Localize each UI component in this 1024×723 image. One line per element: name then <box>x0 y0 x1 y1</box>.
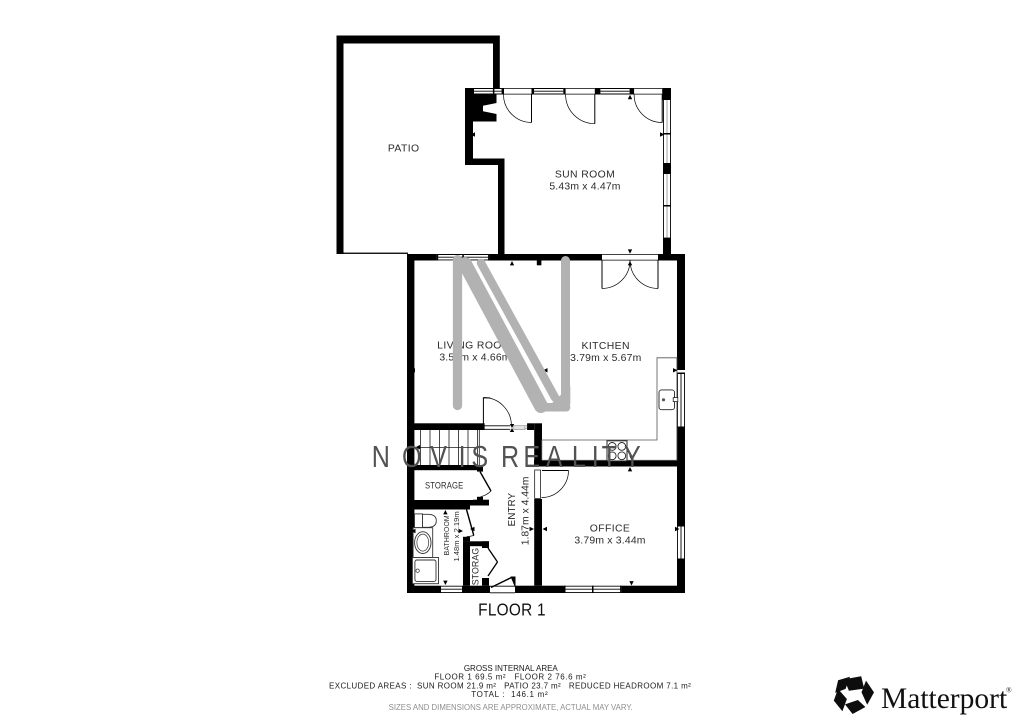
svg-text:FLOOR 1: FLOOR 1 <box>478 601 546 620</box>
svg-text:SUN ROOM: SUN ROOM <box>555 169 615 180</box>
svg-text:Matterport: Matterport <box>881 683 1008 715</box>
svg-text:TOTAL : 146.1 m²: TOTAL : 146.1 m² <box>471 690 548 699</box>
svg-text:3.55m x 4.66m: 3.55m x 4.66m <box>439 353 510 364</box>
svg-text:5.43m x 4.47m: 5.43m x 4.47m <box>549 181 620 192</box>
svg-text:FLOOR 1 69.5 m² FLOOR 2 76.6: FLOOR 1 69.5 m² FLOOR 2 76.6 m² <box>434 673 586 682</box>
svg-text:SIZES AND DIMENSIONS ARE APPRO: SIZES AND DIMENSIONS ARE APPROXIMATE, AC… <box>389 703 633 712</box>
svg-text:®: ® <box>1006 686 1012 695</box>
svg-text:1.87m x 4.44m: 1.87m x 4.44m <box>520 477 531 546</box>
svg-text:3.79m x 5.67m: 3.79m x 5.67m <box>570 353 641 364</box>
svg-text:OFFICE: OFFICE <box>590 524 631 535</box>
svg-text:3.79m x 3.44m: 3.79m x 3.44m <box>574 536 645 547</box>
svg-text:KITCHEN: KITCHEN <box>581 341 629 352</box>
svg-text:STORAGE: STORAGE <box>425 480 464 491</box>
svg-text:GROSS INTERNAL AREA: GROSS INTERNAL AREA <box>464 664 559 673</box>
svg-text:STORAG: STORAG <box>471 548 481 586</box>
svg-text:1.48m x 2.19m: 1.48m x 2.19m <box>452 511 461 561</box>
svg-text:BATHROOM: BATHROOM <box>444 515 451 555</box>
svg-text:PATIO: PATIO <box>388 144 420 155</box>
svg-text:EXCLUDED AREAS : SUN ROOM 21.: EXCLUDED AREAS : SUN ROOM 21.9 m² PATIO … <box>329 682 691 691</box>
svg-text:ENTRY: ENTRY <box>507 492 518 526</box>
